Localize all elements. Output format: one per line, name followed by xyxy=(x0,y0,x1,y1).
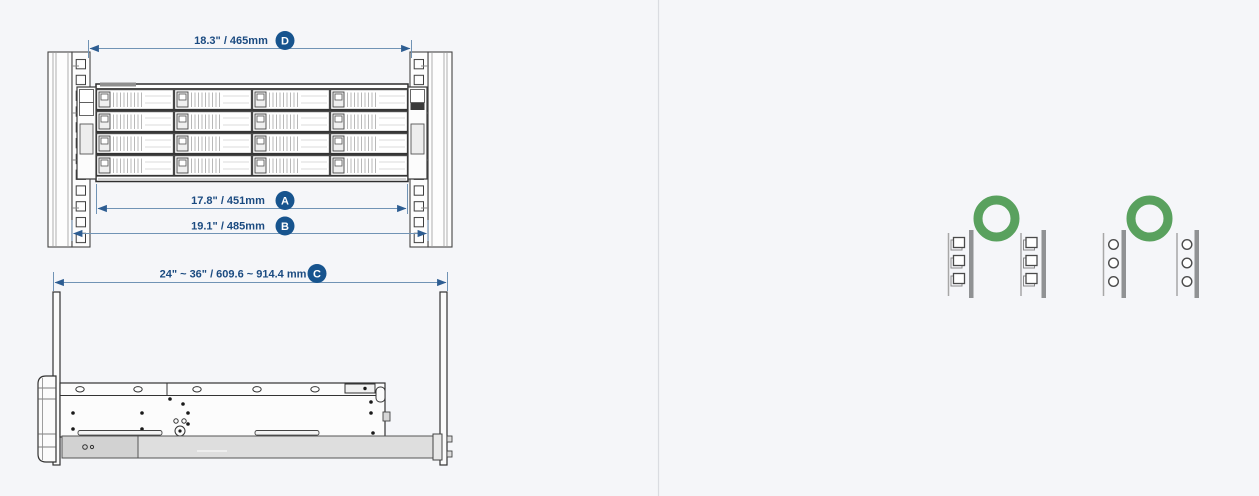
front-bracket-side xyxy=(38,376,56,462)
dimension-d: 18.3" / 465mm D xyxy=(89,31,412,58)
round-hole-post-left xyxy=(1104,230,1127,298)
front-view-illustration xyxy=(48,52,452,247)
round-hole-post-right xyxy=(1177,230,1199,298)
right-mounting-ear xyxy=(408,87,427,179)
dimension-c-label: 24" ~ 36" / 609.6 ~ 914.4 mm xyxy=(160,269,307,281)
dimension-a-badge-letter: A xyxy=(281,196,289,208)
inner-slide-rail xyxy=(62,434,452,460)
dimension-b: 19.1" / 485mm B xyxy=(72,217,428,242)
enclosure-front xyxy=(77,83,427,182)
rack-compatibility-panel xyxy=(949,200,1200,298)
dimension-d-label: 18.3" / 465mm xyxy=(194,35,268,47)
square-hole-post-left xyxy=(949,230,974,298)
square-hole-rack-illustration xyxy=(949,200,1047,298)
side-view-illustration xyxy=(38,292,452,465)
dimension-b-badge-letter: B xyxy=(281,221,289,233)
diagram-svg: 18.3" / 465mm D 17.8" / 451mm A 19.1" / … xyxy=(0,0,1259,496)
left-mounting-ear xyxy=(77,87,96,179)
dimension-d-badge-letter: D xyxy=(281,36,289,48)
dimension-a: 17.8" / 451mm A xyxy=(97,184,408,214)
dimension-c-badge-letter: C xyxy=(313,269,321,281)
dimension-a-label: 17.8" / 451mm xyxy=(191,195,265,207)
rack-rail-dimension-diagram: 18.3" / 465mm D 17.8" / 451mm A 19.1" / … xyxy=(0,0,1259,496)
compatible-ring-icon xyxy=(1131,200,1168,237)
compatible-ring-icon xyxy=(978,200,1015,237)
round-hole-rack-illustration xyxy=(1104,200,1200,298)
dimension-b-label: 19.1" / 485mm xyxy=(191,221,265,233)
slide-rail-body xyxy=(60,383,390,437)
square-hole-post-right xyxy=(1021,230,1046,298)
dimension-c: 24" ~ 36" / 609.6 ~ 914.4 mm C xyxy=(54,264,448,291)
